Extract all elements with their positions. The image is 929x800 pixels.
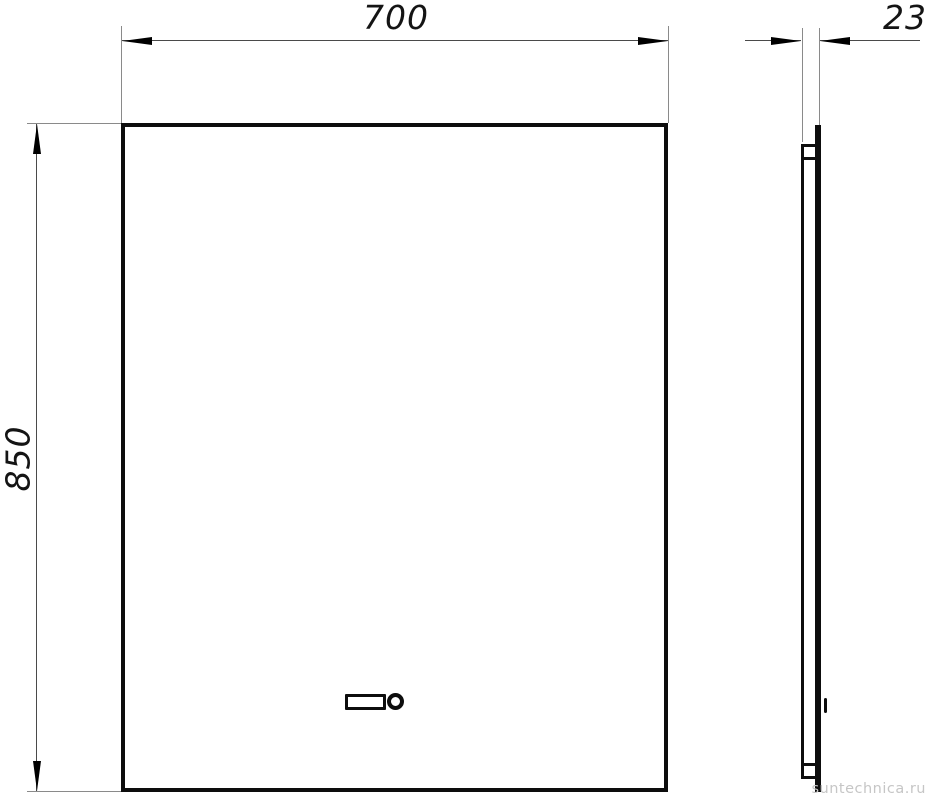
width-dimension-line [122, 40, 668, 41]
depth-extension-line-left [802, 28, 803, 142]
side-view-top-bracket-upper-line [801, 144, 815, 147]
depth-dimension-label: 23 [855, 1, 929, 34]
height-arrow-down-icon [33, 761, 41, 791]
height-extension-line-top [27, 123, 121, 124]
height-arrow-up-icon [33, 124, 41, 154]
width-extension-line-right [668, 26, 669, 123]
depth-arrow-left-icon [820, 37, 850, 45]
height-dimension-label: 850 [2, 409, 35, 509]
sensor-display-icon [345, 694, 386, 710]
side-view-sensor-tick [824, 698, 827, 713]
width-arrow-right-icon [638, 37, 668, 45]
side-view-glass-edge [815, 125, 821, 792]
technical-drawing-canvas: 700 850 23 suntechnica.ru [0, 0, 929, 800]
width-dimension-label: 700 [346, 1, 446, 34]
depth-arrow-right-icon [771, 37, 801, 45]
side-view-bottom-bracket-lower-line [801, 776, 815, 779]
touch-button-icon [387, 693, 404, 710]
height-extension-line-bottom [27, 791, 121, 792]
side-view-body-back-line [801, 144, 804, 779]
front-view-mirror-outline [121, 123, 668, 792]
side-view-bottom-bracket-upper-line [801, 763, 815, 766]
width-arrow-left-icon [122, 37, 152, 45]
side-view-top-bracket-lower-line [801, 157, 815, 160]
watermark-text: suntechnica.ru [811, 782, 926, 797]
